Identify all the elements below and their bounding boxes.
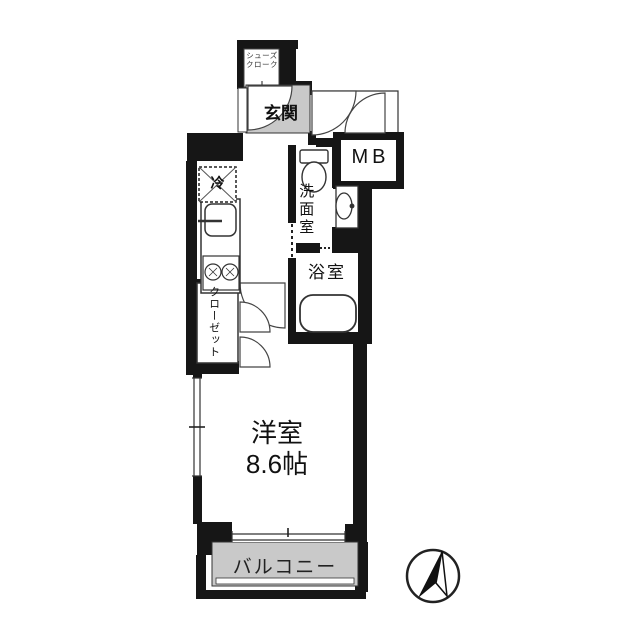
shoe-closet-label: シューズ クローク (243, 52, 281, 69)
meter-box-label: MB (341, 146, 396, 169)
room-door-arc (240, 337, 270, 367)
compass-north-icon (407, 550, 459, 602)
washbasin-icon (336, 186, 358, 228)
floor-plan-drawing (0, 0, 640, 640)
floor-plan: シューズ クローク 玄関 MB 冷 洗面室 浴室 クローゼット 洋室 8.6帖 … (0, 0, 640, 640)
washroom-label: 洗面室 (297, 183, 314, 237)
balcony-label: バルコニー (212, 557, 358, 579)
refrigerator-label: 冷 (199, 175, 236, 191)
main-room-size: 8.6帖 (198, 449, 356, 480)
bathroom-label: 浴室 (296, 263, 358, 283)
window-balcony (232, 528, 345, 542)
main-room-label: 洋室 8.6帖 (198, 418, 356, 480)
kitchen-counter (198, 199, 240, 293)
main-room-name: 洋室 (198, 418, 356, 449)
bathtub-icon (300, 295, 356, 332)
closet-label: クローゼット (207, 286, 220, 358)
entrance-label: 玄関 (252, 104, 310, 124)
